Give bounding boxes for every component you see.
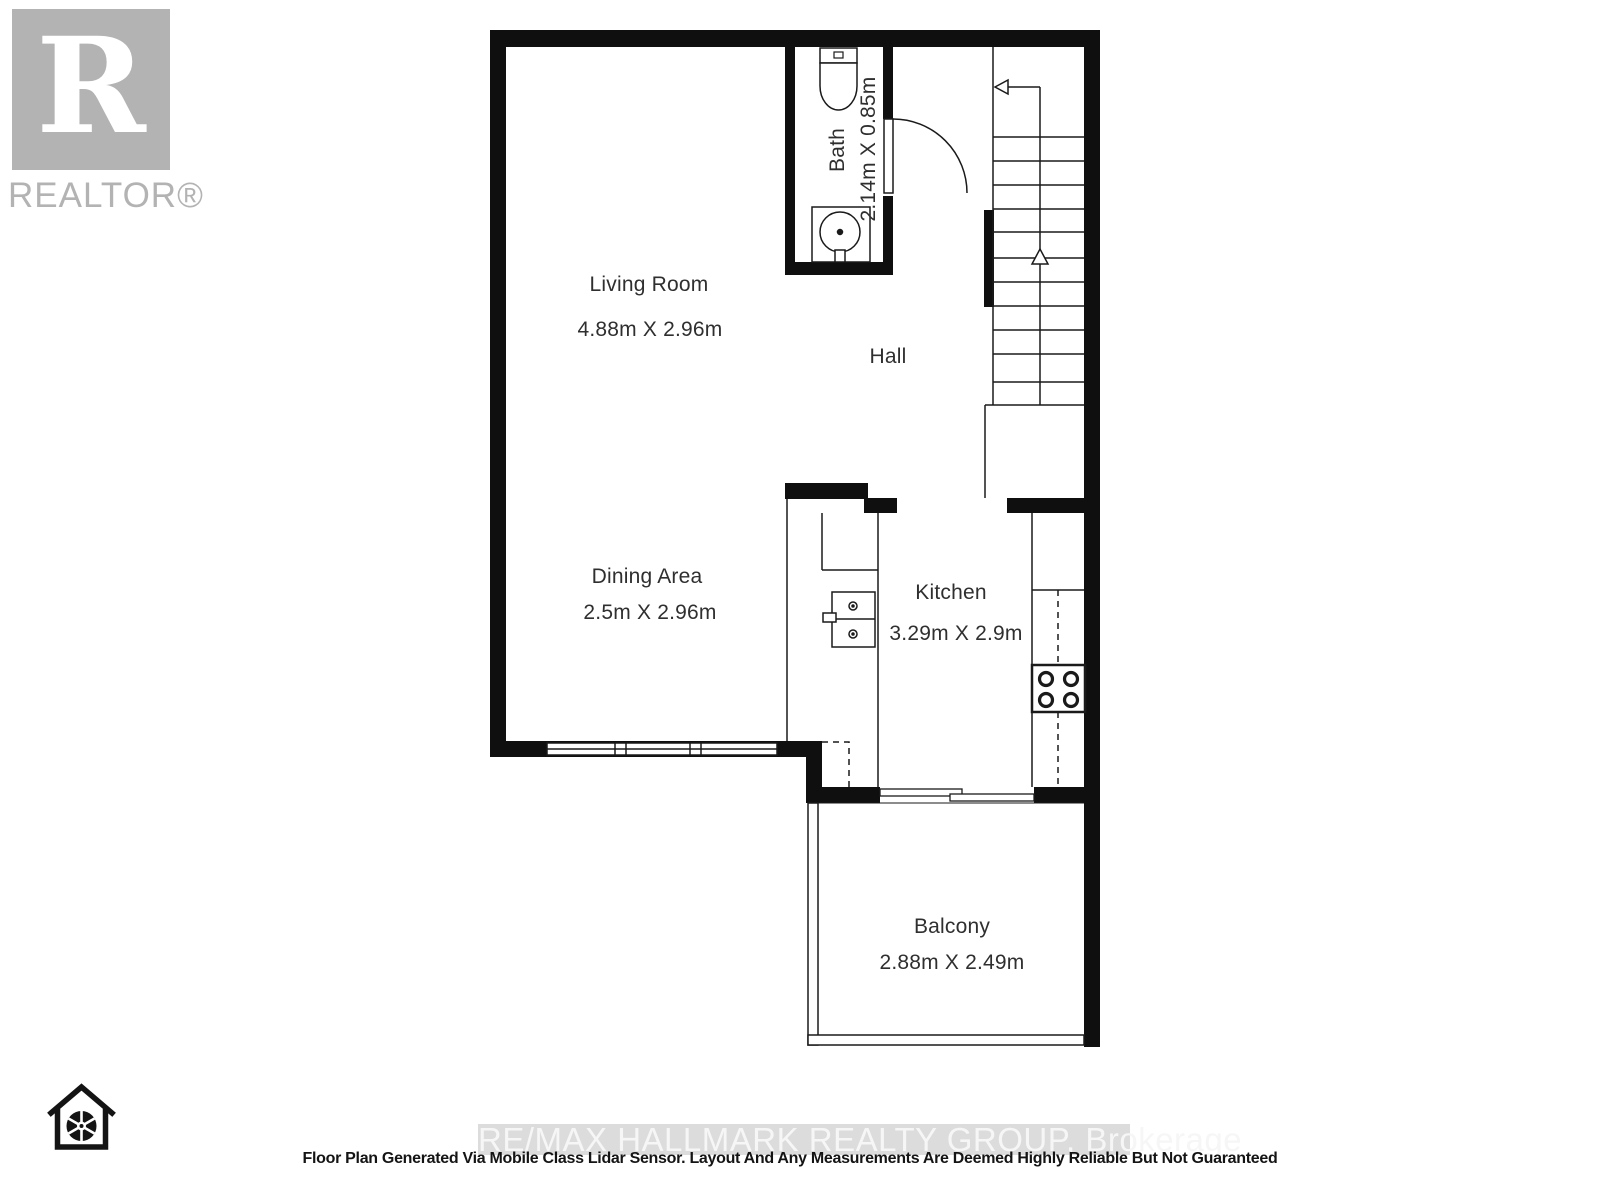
wall — [1007, 498, 1100, 513]
kitchen-dimensions: 3.29m X 2.9m — [889, 622, 1022, 646]
up-arrow-icon — [1032, 249, 1048, 264]
house-aperture-icon — [44, 1078, 119, 1158]
stove-icon — [1032, 665, 1085, 712]
wall — [785, 47, 795, 275]
bath-label: Bath — [826, 128, 850, 172]
sliding-door — [880, 789, 1034, 801]
disclaimer-text: Floor Plan Generated Via Mobile Class Li… — [0, 1150, 1580, 1168]
window — [547, 743, 777, 755]
balcony-label: Balcony — [914, 915, 990, 939]
wall — [822, 787, 880, 803]
left-arrow-icon — [995, 80, 1008, 94]
opening-dashed-line — [822, 742, 849, 787]
wall — [785, 483, 868, 499]
wall — [490, 30, 1100, 47]
kitchen-sink-icon — [823, 592, 875, 647]
wall — [883, 47, 893, 119]
walls — [490, 30, 1100, 1047]
floor-plan-drawing — [0, 0, 1600, 1200]
toilet-icon — [820, 48, 857, 110]
wall — [883, 196, 893, 262]
floor-plan: R REALTOR® — [0, 0, 1600, 1200]
wall — [1084, 30, 1100, 1047]
dining-area-dimensions: 2.5m X 2.96m — [583, 601, 716, 625]
wall — [806, 741, 822, 803]
wall — [1034, 787, 1084, 803]
bath-dimensions: 2.14m X 0.85m — [857, 76, 881, 221]
aperture-icon — [67, 1111, 97, 1141]
wall — [785, 262, 893, 275]
staircase — [985, 47, 1084, 498]
wall — [864, 498, 897, 513]
balcony-dimensions: 2.88m X 2.49m — [879, 951, 1024, 975]
kitchen-label: Kitchen — [915, 581, 986, 605]
wall — [490, 30, 506, 757]
living-room-label: Living Room — [590, 273, 709, 297]
dining-area-label: Dining Area — [592, 565, 703, 589]
living-room-dimensions: 4.88m X 2.96m — [577, 318, 722, 342]
hall-label: Hall — [870, 345, 907, 369]
bath-door — [884, 119, 967, 193]
